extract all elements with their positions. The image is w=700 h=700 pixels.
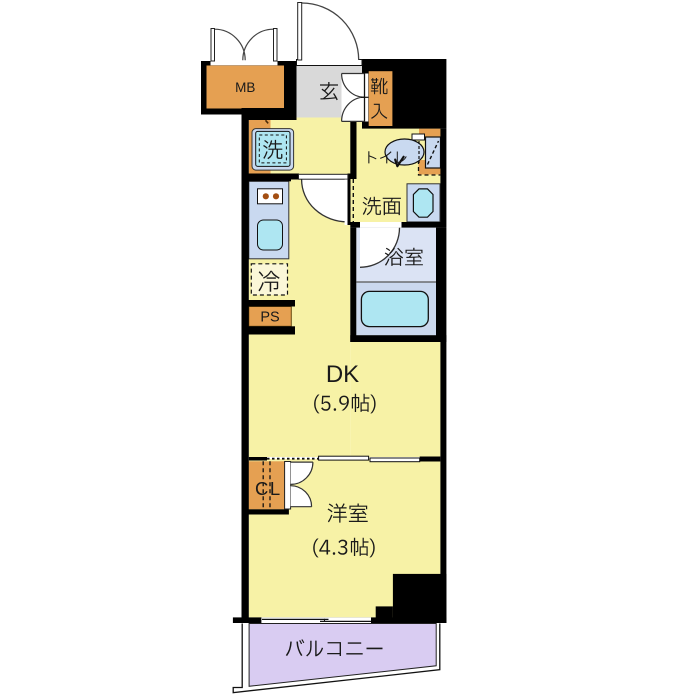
svg-text:CL: CL <box>255 478 282 499</box>
svg-text:DK: DK <box>326 361 359 388</box>
svg-text:PS: PS <box>260 310 279 326</box>
svg-text:MB: MB <box>235 80 255 95</box>
